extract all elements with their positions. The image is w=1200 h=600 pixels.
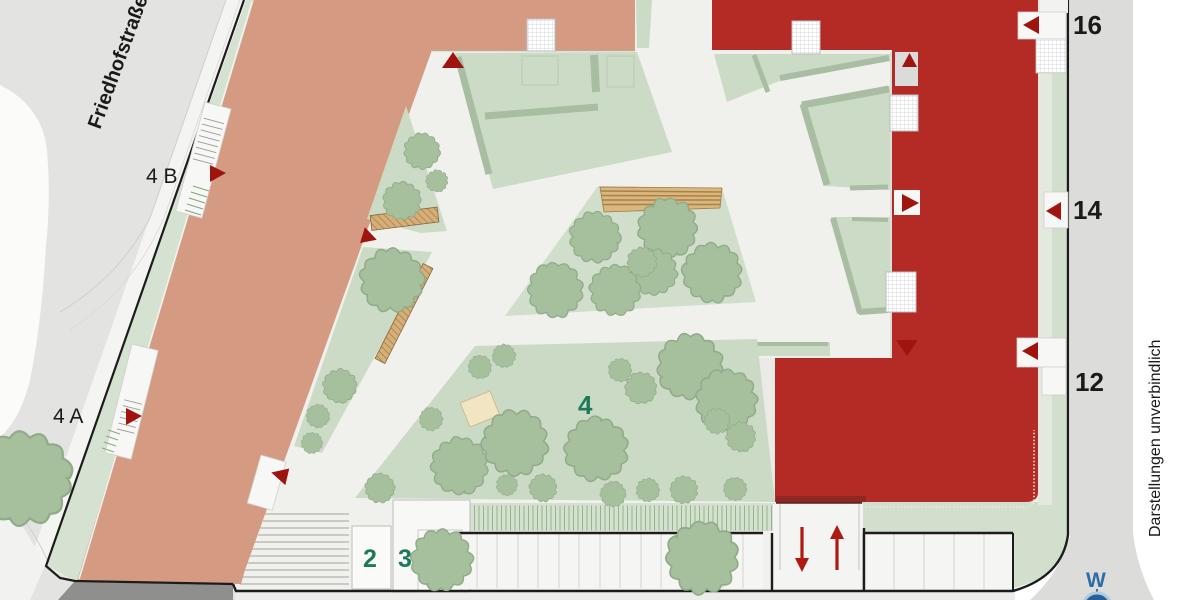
svg-text:4 B: 4 B [146, 165, 178, 188]
svg-text:4 A: 4 A [53, 405, 83, 428]
svg-text:2: 2 [363, 545, 377, 573]
svg-text:Darstellungen unverbindlich: Darstellungen unverbindlich [1147, 340, 1164, 537]
svg-text:3: 3 [398, 545, 412, 573]
svg-text:12: 12 [1075, 367, 1104, 397]
svg-text:W: W [1086, 569, 1106, 592]
svg-text:4: 4 [578, 390, 593, 420]
svg-text:16: 16 [1073, 10, 1102, 40]
svg-text:14: 14 [1073, 195, 1102, 225]
